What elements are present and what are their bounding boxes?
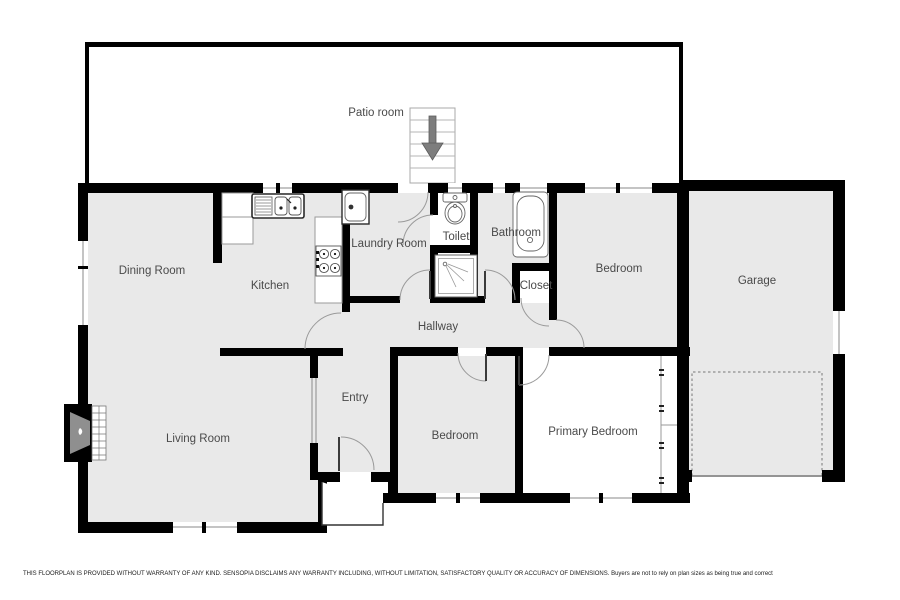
room-label-laundry: Laundry Room <box>351 238 426 250</box>
window <box>433 493 483 503</box>
room-label-living: Living Room <box>166 433 230 445</box>
window <box>582 183 655 193</box>
wall-segment <box>78 522 170 533</box>
wall-toilet-bottom <box>430 245 478 253</box>
patio-wall-left <box>85 42 89 192</box>
room-label-dining: Dining Room <box>119 265 185 277</box>
entry-porch <box>322 482 383 525</box>
shower-icon <box>435 255 477 297</box>
window <box>445 183 465 193</box>
primary-wardrobe <box>659 356 677 493</box>
disclaimer-text: THIS FLOORPLAN IS PROVIDED WITHOUT WARRA… <box>23 571 773 577</box>
wall-segment <box>508 183 517 193</box>
wall-living-top <box>220 348 343 356</box>
laundry-sink-icon <box>342 190 369 224</box>
room-label-garage: Garage <box>738 275 776 287</box>
bathtub-icon <box>513 192 548 257</box>
window <box>490 183 508 193</box>
floor-entry <box>318 348 390 472</box>
room-label-bedroom-top: Bedroom <box>596 263 643 275</box>
room-label-kitchen: Kitchen <box>251 280 289 292</box>
wall-garage-top <box>683 180 845 191</box>
room-label-patio: Patio room <box>348 107 404 119</box>
floor-bedroom-mid <box>398 356 515 493</box>
fireplace-icon <box>64 404 106 462</box>
wall-segment <box>550 183 582 193</box>
wall-bedroom-top-left <box>549 193 557 320</box>
room-label-toilet: Toilet <box>443 231 471 243</box>
window <box>833 308 845 357</box>
wall-segment <box>240 522 327 533</box>
window <box>517 183 550 193</box>
wall-garage-left <box>677 183 689 503</box>
floorplan-page: Patio room Dining Room Kitchen Laundry R… <box>0 0 900 600</box>
wall-segment <box>833 190 845 308</box>
wall-segment <box>483 493 567 503</box>
wall-segment <box>833 357 845 482</box>
stove-icon <box>316 246 341 276</box>
room-label-closet: Closet <box>520 280 553 292</box>
room-label-bedroom-mid: Bedroom <box>432 430 479 442</box>
wall-segment <box>486 347 517 356</box>
window <box>170 522 240 533</box>
kitchen-sink-unit <box>252 194 304 218</box>
door-arc-primary <box>519 355 549 385</box>
room-label-entry: Entry <box>342 392 369 404</box>
wall-segment <box>310 443 318 480</box>
room-label-hallway: Hallway <box>418 321 459 333</box>
wall-segment <box>310 356 318 378</box>
wall-dining-kitchen <box>213 193 222 263</box>
wall-segment <box>430 186 438 215</box>
dishwasher-icon <box>255 197 272 215</box>
wall-segment <box>390 347 458 356</box>
room-label-primary: Primary Bedroom <box>548 426 637 438</box>
floorplan-canvas: Patio room Dining Room Kitchen Laundry R… <box>0 0 900 600</box>
toilet-icon <box>443 193 467 224</box>
wall-segment <box>342 296 400 303</box>
window <box>260 183 295 193</box>
wall-segment <box>78 183 88 238</box>
wall-bedroom-mid-left <box>390 347 398 503</box>
stairs <box>410 108 455 183</box>
floor-garage <box>689 190 833 475</box>
wall-segment <box>78 183 260 193</box>
wall-segment <box>318 472 340 482</box>
window <box>567 493 635 503</box>
wall-segment <box>549 347 690 356</box>
patio-wall-top <box>85 42 683 47</box>
room-label-bathroom: Bathroom <box>491 227 541 239</box>
window <box>78 238 88 328</box>
patio-wall-right <box>679 42 683 192</box>
